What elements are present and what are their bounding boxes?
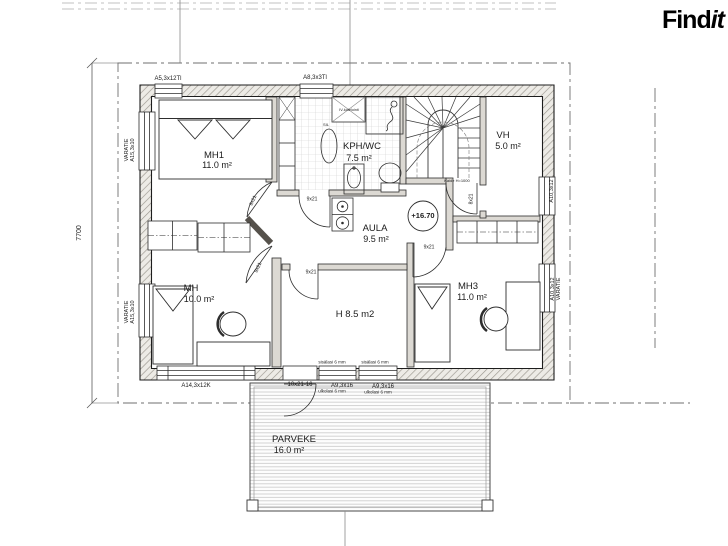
window-size-text: A15,3x10 [131, 300, 137, 323]
floor-plan-page: MH1 11.0 m² KPH/WC 7.5 m² VH 5.0 m² AULA… [0, 0, 728, 546]
room-area-mh1: 11.0 m² [202, 161, 232, 171]
room-label-mh3: MH3 [458, 282, 478, 292]
room-label-parveke: PARVEKE [272, 435, 316, 445]
bed-mh3 [415, 284, 450, 362]
window-size-text: A15,3x10 [131, 138, 137, 161]
dimension-line [87, 58, 118, 408]
door-label-kph: 9x21 [307, 197, 318, 202]
room-area-mh3: 11.0 m² [457, 293, 487, 303]
room-area-mh: 10.0 m² [184, 295, 215, 305]
desk-mh [197, 342, 270, 366]
door-label-vh: 8x21 [469, 194, 474, 205]
note-sil: SIL [323, 123, 329, 127]
window-label-right-lower: A10,3x12 VARATIE [551, 277, 563, 300]
window-label-right-upper: A10,3x12 [550, 179, 556, 202]
dimension-7700: 7700 [76, 225, 84, 241]
balcony [247, 383, 493, 546]
door-label-h: 9x21 [306, 270, 317, 275]
door-label-mh3: 9x21 [424, 245, 435, 250]
floor-plan-drawing [0, 0, 728, 546]
window-label-top-left: A5,3x12Tl [154, 76, 181, 82]
findit-logo-it: it [711, 6, 724, 34]
reference-lines [62, 0, 556, 86]
room-label-h: H 8.5 m2 [336, 310, 375, 320]
glass-note-outer-b: ulkolasi 6 mm [364, 391, 392, 396]
balcony-door-label: 10x21-16 [287, 382, 312, 388]
room-area-aula: 9.5 m² [363, 235, 389, 245]
window-label-left-upper: VARATIE A15,3x10 [125, 138, 137, 161]
level-marker: +16.70 [411, 212, 434, 220]
window-label-top-mid: A8,3x3Tl [303, 75, 327, 81]
staircase [406, 97, 480, 178]
window-label-left-lower: VARATIE A15,3x10 [125, 300, 137, 323]
chair-mh [218, 312, 246, 336]
room-label-mh: MH [184, 284, 199, 294]
glass-note-outer-a: ulkolasi 6 mm [318, 390, 346, 395]
room-label-kph: KPH/WC [343, 142, 381, 152]
note-iv-duct: IV-kotelointi [339, 108, 359, 112]
chair-mh3 [481, 307, 508, 331]
desk-mh3 [506, 282, 540, 350]
room-label-vh: VH [496, 131, 509, 141]
findit-logo[interactable]: Findit [662, 6, 724, 35]
findit-logo-find: Find [662, 6, 711, 34]
room-area-vh: 5.0 m² [495, 142, 521, 152]
glass-note-inner-b: sisälasi 6 mm [361, 361, 388, 366]
glass-note-inner-a: sisälasi 6 mm [318, 361, 345, 366]
room-label-aula: AULA [363, 224, 388, 234]
varatie-text: VARATIE [557, 277, 563, 300]
note-kaide: Kaide H=1000 [444, 179, 469, 183]
chamfer-wall [247, 218, 271, 243]
window-label-bottom: A14,3x12K [181, 383, 210, 389]
room-area-parveke: 16.0 m² [274, 446, 305, 456]
washer-dryer [332, 198, 353, 231]
room-area-kph: 7.5 m² [346, 154, 372, 164]
